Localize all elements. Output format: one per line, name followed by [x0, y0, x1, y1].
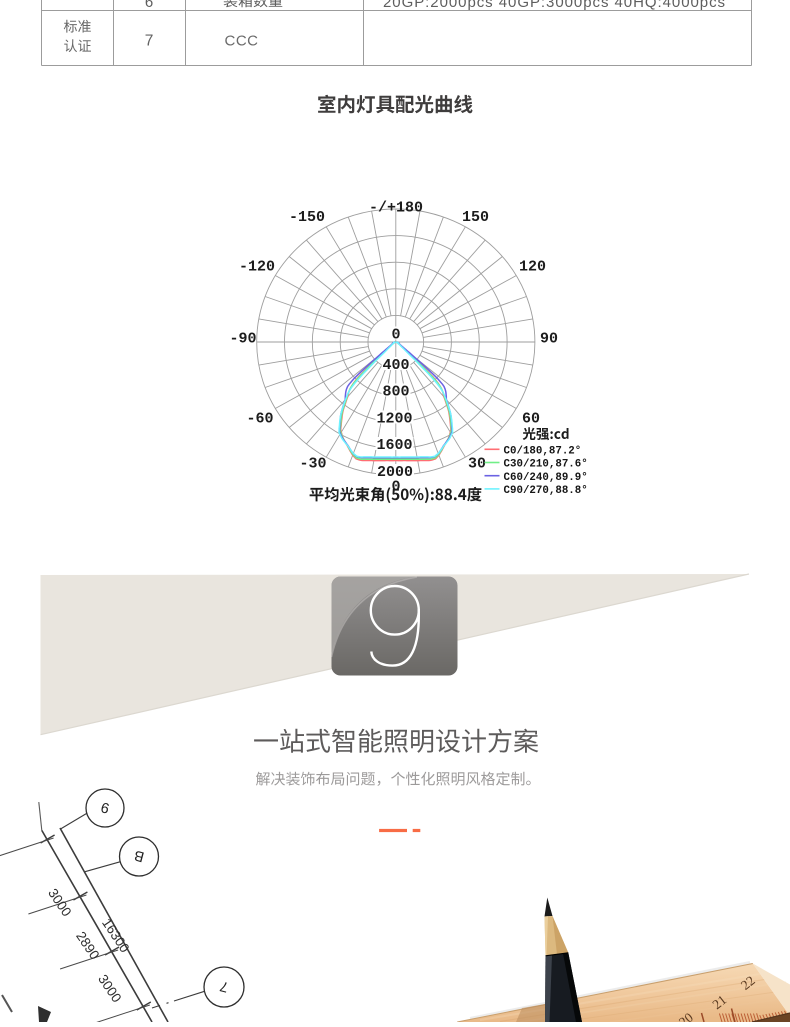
svg-text:C90/270,88.8°: C90/270,88.8° — [504, 485, 588, 497]
svg-text:-60: -60 — [246, 410, 273, 427]
svg-text:CCC: CCC — [225, 33, 259, 50]
svg-text:-/+180: -/+180 — [369, 199, 423, 216]
svg-text:-120: -120 — [239, 258, 275, 275]
svg-text:6: 6 — [145, 0, 153, 11]
svg-text:1600: 1600 — [376, 437, 412, 454]
svg-text:90: 90 — [540, 330, 558, 347]
svg-text:-30: -30 — [299, 455, 326, 472]
svg-text:-90: -90 — [229, 330, 256, 347]
svg-text:C0/180,87.2°: C0/180,87.2° — [504, 446, 582, 458]
svg-text:7: 7 — [145, 33, 154, 50]
svg-text:-150: -150 — [289, 209, 325, 226]
svg-text:120: 120 — [519, 258, 546, 275]
svg-text:20GP:2000pcs 40GP:3000pcs 40HQ: 20GP:2000pcs 40GP:3000pcs 40HQ:4000pcs — [383, 0, 726, 11]
svg-text:0: 0 — [391, 326, 400, 343]
svg-text:800: 800 — [382, 383, 409, 400]
svg-text:150: 150 — [462, 209, 489, 226]
svg-text:1200: 1200 — [376, 410, 412, 427]
svg-text:30: 30 — [468, 455, 486, 472]
svg-text:2000: 2000 — [377, 464, 413, 481]
svg-text:400: 400 — [382, 357, 409, 374]
svg-text:C60/240,89.9°: C60/240,89.9° — [504, 472, 588, 484]
svg-text:60: 60 — [522, 410, 540, 427]
svg-text:C30/210,87.6°: C30/210,87.6° — [504, 459, 588, 471]
